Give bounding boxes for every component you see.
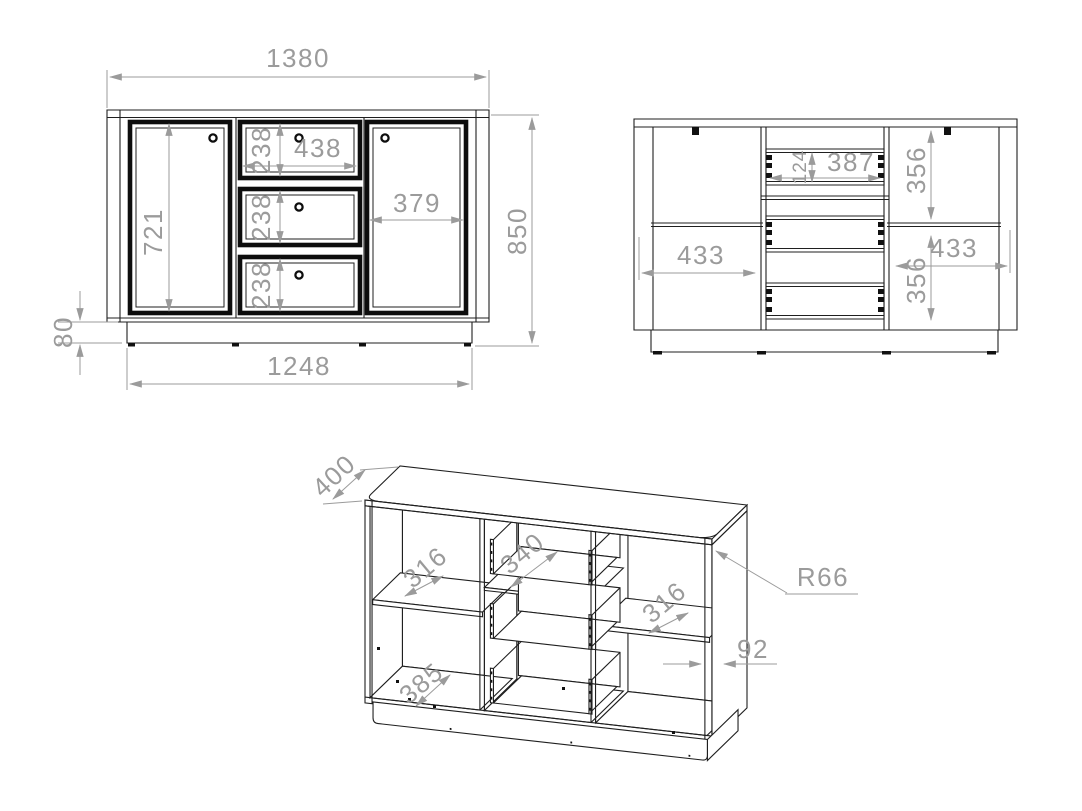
dim-drawer3-height: 238	[246, 261, 276, 309]
back-drawer-2	[766, 216, 884, 252]
dim-plinth-height: 80	[48, 316, 78, 348]
dim-right-door-width: 379	[393, 188, 441, 218]
dim-drawer-back-height: 124	[790, 150, 811, 185]
dim-drawer-width: 438	[294, 133, 342, 163]
dim-upper-section-height: 356	[901, 146, 931, 194]
dim-left-shelf-width: 433	[677, 240, 725, 270]
dim-right-shelf-width: 433	[930, 233, 978, 263]
dim-overall-height: 850	[502, 207, 532, 255]
dim-drawer-back-width: 387	[827, 147, 875, 177]
dim-corner-radius: R66	[797, 562, 849, 592]
iso-right-side	[712, 505, 747, 742]
drawer-2-handle	[295, 203, 302, 210]
dim-drawer1-height: 238	[246, 126, 276, 174]
back-drawer-3	[766, 283, 884, 319]
drawer-3-handle	[295, 271, 302, 278]
dim-side-gap: 92	[737, 634, 769, 664]
hinge-plate-left	[692, 127, 699, 135]
right-door-handle	[381, 134, 388, 141]
drawing-svg: 1380 850 721 238 238 238 438 379 80	[0, 0, 1082, 811]
dim-lower-section-height: 356	[901, 256, 931, 304]
back-plinth	[651, 330, 998, 355]
front-plinth	[127, 322, 472, 347]
dim-drawer2-height: 238	[246, 193, 276, 241]
back-view: 124 387 356 433 433 356	[634, 119, 1017, 355]
left-door-handle	[209, 134, 216, 141]
dim-door-height: 721	[138, 208, 168, 256]
technical-drawing-canvas: 1380 850 721 238 238 238 438 379 80	[0, 0, 1082, 811]
hinge-plate-right	[944, 127, 951, 135]
dim-base-width: 1248	[267, 351, 331, 381]
dim-overall-width: 1380	[266, 43, 330, 73]
